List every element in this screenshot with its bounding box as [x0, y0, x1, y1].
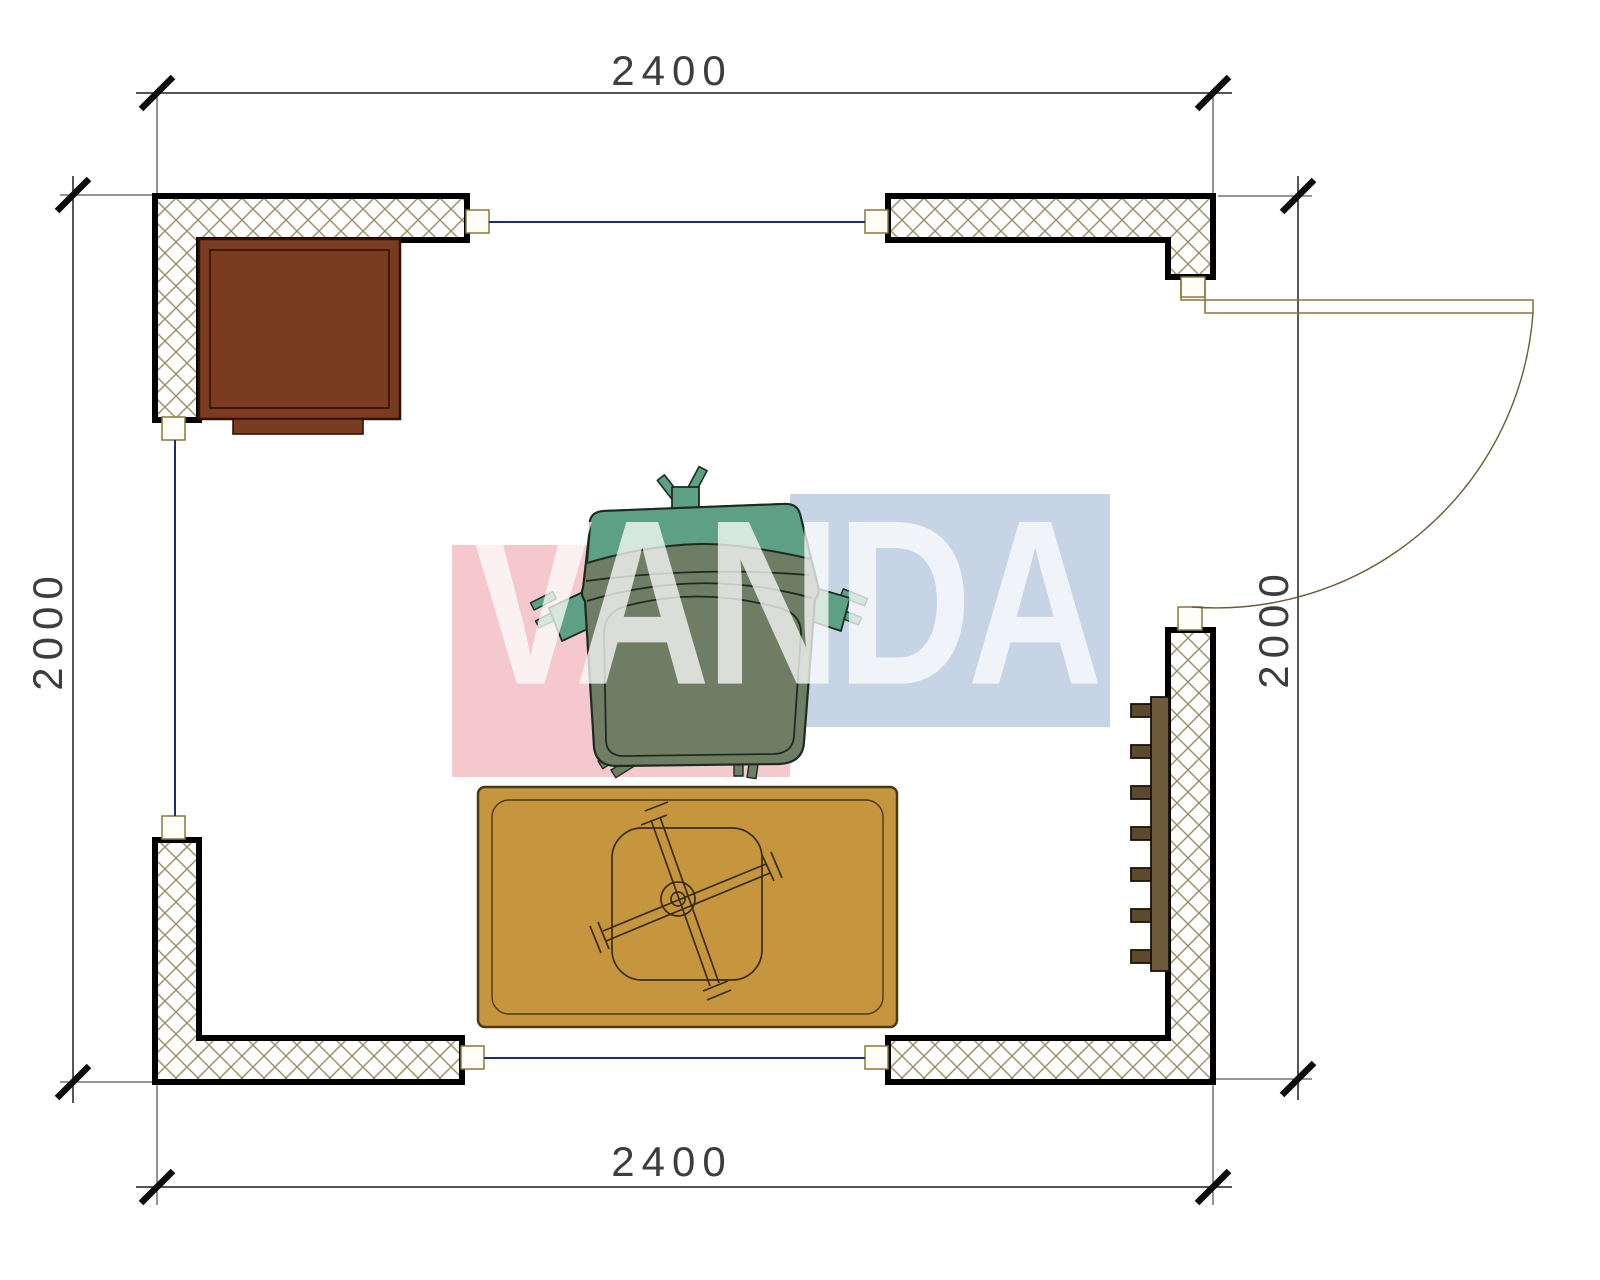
wall-top-right [888, 196, 1213, 277]
wall-bottom-left [155, 840, 462, 1082]
dimension-label-bottom: 2400 [611, 1138, 732, 1186]
floor-plan-drawing [0, 0, 1600, 1280]
door [1181, 281, 1533, 608]
dimension-label-right: 2000 [1250, 567, 1298, 688]
floor-plan-canvas: 2400 2400 2000 2000 VANDA [0, 0, 1600, 1280]
radiator [1131, 697, 1169, 971]
dimension-label-left: 2000 [24, 569, 72, 690]
dimension-label-top: 2400 [611, 47, 732, 95]
door-leaf [1181, 281, 1533, 313]
door-swing-arc [1192, 313, 1533, 608]
radiator-fins [1131, 704, 1151, 963]
cabinet [199, 239, 400, 434]
